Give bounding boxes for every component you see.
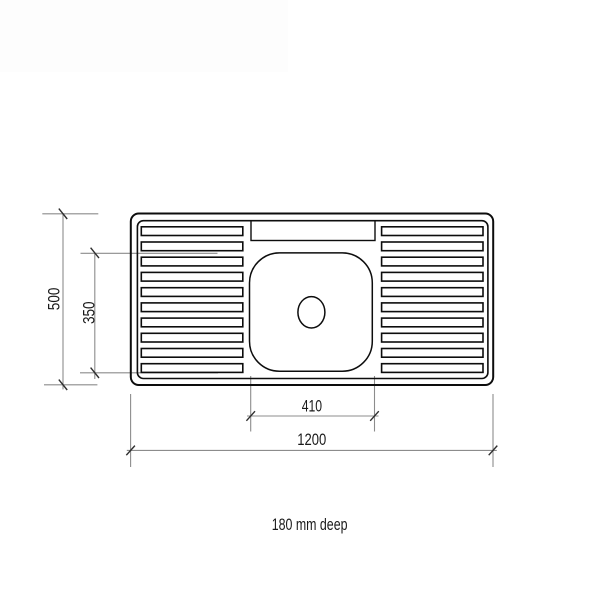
svg-text:180 mm deep: 180 mm deep	[272, 516, 348, 534]
svg-text:410: 410	[302, 398, 322, 416]
svg-text:350: 350	[80, 301, 98, 324]
svg-text:1200: 1200	[297, 431, 326, 449]
svg-text:500: 500	[46, 288, 64, 311]
